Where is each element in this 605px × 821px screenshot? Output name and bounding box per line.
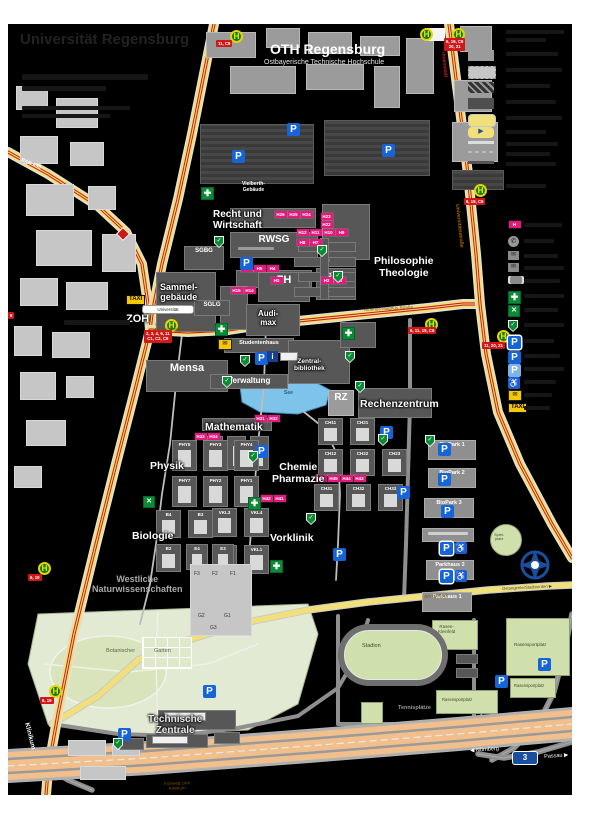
assembly-point-icon: ✕ <box>143 496 155 508</box>
legend-phone-icon: ✆ <box>508 236 519 247</box>
building <box>456 654 478 664</box>
city-block <box>80 766 126 780</box>
redacted-text-bar <box>524 323 564 327</box>
building-phy2: PHY2 <box>203 476 228 507</box>
redacted-text-bar <box>506 130 546 134</box>
map-label-line: Kleinfeld <box>438 629 455 634</box>
map-label-line: Westliche <box>92 574 183 584</box>
building-label: CH22 <box>351 451 374 456</box>
building-label: CH23 <box>383 451 406 456</box>
redacted-text-bar <box>22 114 110 118</box>
bus-route-line: 11, 20, 21 <box>484 343 503 348</box>
lecture-hall-badge: H41 <box>274 495 286 502</box>
map-label: WestlicheNaturwissenschaften <box>92 574 183 594</box>
map-label: Garten <box>154 648 171 654</box>
map-label: F3 <box>194 572 200 578</box>
lecture-hall-badge-cluster: H26H25H24 <box>274 210 313 218</box>
bus-route-line: 20, 21 <box>446 44 463 49</box>
lecture-hall-badge-cluster: H42H41 <box>260 494 286 502</box>
redacted-text-bar <box>506 162 556 166</box>
building-verwaltung: Verwaltung <box>210 374 288 389</box>
lecture-hall-badge-cluster: H23H22 <box>320 212 333 228</box>
legend-mail-icon: ✉ <box>508 251 519 260</box>
map-label: Vielberth-Gebäude <box>242 182 265 193</box>
city-block <box>68 740 106 756</box>
city-block <box>66 282 108 310</box>
building-ch23: CH23 <box>382 449 407 476</box>
map-label-line: platz <box>494 537 504 541</box>
lecture-hall-badge: H24 <box>301 211 313 218</box>
stadium <box>338 624 448 686</box>
building-label: CH11 <box>319 420 342 425</box>
map-label-line: Zentrale <box>148 725 202 736</box>
map-label: Albertus-Magnus-Straße <box>154 326 203 332</box>
lecture-hall-badge: H11 <box>310 229 322 236</box>
building-label: RZ <box>329 392 353 404</box>
building-label: B4 <box>157 512 180 517</box>
map-label: TechnischeZentrale <box>148 714 202 736</box>
city-block <box>70 142 104 166</box>
map-label: Recht undWirtschaft <box>213 209 262 231</box>
bus-route-line: 6, 11, 19, C6 <box>410 328 434 333</box>
taxi-sign: TAXI <box>126 295 145 305</box>
redacted-text-bar <box>524 254 558 258</box>
building-studentenhaus: Studentenhaus <box>224 338 294 353</box>
lecture-hall-badge: H44 <box>341 475 353 482</box>
map-label-line: Philosophie <box>374 256 434 268</box>
legend-swatch-university-building <box>468 50 494 61</box>
lecture-hall-badge: H5 <box>254 265 266 272</box>
map-label-line: bibliothek <box>294 365 325 372</box>
city-block <box>88 186 116 210</box>
map-label: Universität Regensburg <box>20 32 189 49</box>
map-label-line: Gebäude <box>242 188 265 194</box>
redacted-text-bar <box>524 393 552 397</box>
building-label: SGLG <box>195 302 229 309</box>
compass-rose-graphic <box>520 550 550 580</box>
building-label: PHY2 <box>204 478 227 483</box>
parking-lot <box>324 120 430 176</box>
city-block <box>52 332 90 358</box>
map-label: Botanischer <box>106 648 135 654</box>
lecture-hall-badge: H8 <box>297 239 309 246</box>
legend-parking-light-icon: P <box>508 364 521 377</box>
stadium-infield <box>344 630 442 680</box>
building-label: E3 <box>213 546 233 551</box>
green-court <box>361 702 383 724</box>
map-label-line: Recht und <box>213 209 262 220</box>
redacted-text-bar <box>524 380 556 384</box>
redacted-text-bar <box>524 223 562 227</box>
bus-route-line: 6, 19, C6 <box>466 199 483 204</box>
redacted-text-bar <box>524 239 554 243</box>
map-label-line: gebäude <box>160 292 198 302</box>
map-label: Physik <box>150 461 184 473</box>
map-label-line: Naturwissenschaften <box>92 584 183 594</box>
map-label: Fußweg zumKlinikum <box>164 780 190 791</box>
city-block <box>14 326 42 356</box>
bus-route-sign: 11, 20, 21 <box>482 342 505 349</box>
building <box>456 668 478 678</box>
lecture-hall-badge-cluster: H12H11H10H9 <box>296 228 348 236</box>
legend-swatch-planned-building <box>468 82 494 93</box>
campus-map-page: RWSGSGBGSGLGZHPT4PT3PT1StudentenhausMens… <box>0 0 605 821</box>
map-label: Rasensportplatz <box>514 642 547 647</box>
building-label: CH31 <box>315 486 338 491</box>
city-block <box>102 234 136 272</box>
oth-building <box>230 66 296 94</box>
building-label: CH12 <box>319 451 342 456</box>
first-aid-icon: ✚ <box>201 187 214 200</box>
oth-building <box>406 38 434 94</box>
map-label: Biologie <box>132 531 173 543</box>
building-label: PHY1 <box>235 478 258 483</box>
map-label: G2 <box>198 614 205 620</box>
building <box>214 732 240 744</box>
city-block <box>56 98 98 128</box>
building-label: PHY7 <box>173 478 196 483</box>
accessible-parking-icon: ♿ <box>455 542 467 554</box>
building-label: PHY5 <box>173 442 196 447</box>
building-label: Parkhaus 2 <box>427 562 473 568</box>
building-label: VKL4 <box>245 510 268 515</box>
building-vkl3: VKL3 <box>212 508 237 537</box>
redacted-text-bar <box>238 247 274 250</box>
redacted-text-bar <box>524 354 560 358</box>
legend-bus-icon <box>508 276 524 284</box>
redacted-text-bar <box>64 320 130 325</box>
building-biopark-1: BioPark 1 <box>428 440 476 460</box>
map-label: PhilosophieTheologie <box>374 256 434 280</box>
parking-icon: P <box>441 505 454 518</box>
parking-icon: P <box>382 144 395 157</box>
lecture-hall-badge: H7 <box>310 239 322 246</box>
building-label: PHY3 <box>204 442 227 447</box>
redacted-text-bar <box>506 38 546 42</box>
map-label: OTH Regensburg <box>270 42 385 58</box>
legend-swatch-one-way-road: ▶ <box>468 127 494 138</box>
redacted-text-bar <box>524 266 564 270</box>
building-label: BioPark 2 <box>429 470 475 476</box>
map-label: Stadion <box>362 643 381 649</box>
map-label: Sammel-gebäude <box>160 282 198 302</box>
redacted-text-bar <box>506 142 558 146</box>
city-block <box>20 372 56 400</box>
redacted-text-bar <box>506 84 550 88</box>
bus-route-line: 6 <box>10 313 12 318</box>
parking-icon: P <box>538 658 551 671</box>
lecture-hall-badge-cluster: H15H14 <box>230 286 256 294</box>
map-label: Mathematik <box>205 422 263 434</box>
bus-route-sign: 6, 19 <box>28 574 42 581</box>
map-label-line: max <box>258 319 278 328</box>
bus-route-sign: 6 <box>8 312 14 319</box>
parking-icon: P <box>232 150 245 163</box>
redacted-text-bar <box>22 86 106 91</box>
bus-route-sign: 6, 19, C6 <box>464 198 485 205</box>
map-label: See <box>284 391 293 397</box>
lecture-hall-badge: H10 <box>323 229 335 236</box>
legend-swatch-other-building <box>468 66 496 79</box>
bus-stop-icon: H <box>420 28 433 41</box>
building-label: Studentenhaus <box>225 340 293 346</box>
redacted-text-bar <box>524 279 560 283</box>
map-label-line: Klinikum <box>164 785 190 791</box>
building-ch32: CH32 <box>346 484 371 511</box>
building-ch21: CH21 <box>350 418 375 445</box>
legend-parking-bordered-icon: P <box>508 336 521 349</box>
first-aid-icon: ✚ <box>342 327 355 340</box>
parking-icon: P <box>240 257 253 270</box>
map-label: ChemiePharmazie <box>272 462 325 486</box>
legend-swatch-footpath <box>468 151 494 153</box>
building-label: SGBG <box>185 248 223 255</box>
parking-icon: P <box>438 443 451 456</box>
lecture-hall-badge: H4 <box>267 265 279 272</box>
map-label-line: Sammel- <box>160 282 198 292</box>
building-label: BioPark 1 <box>429 442 475 448</box>
redacted-text-bar <box>428 532 468 535</box>
first-aid-icon: ✚ <box>270 560 283 573</box>
parking-icon: P <box>333 548 346 561</box>
redacted-text-bar <box>506 100 556 104</box>
redacted-text-bar <box>22 106 130 110</box>
lecture-hall-badge-cluster: H3 <box>270 276 283 284</box>
map-label: Ostbayerische Technische Hochschule <box>264 59 384 67</box>
map-label: Tennisplätze <box>398 705 431 711</box>
legend-post-icon: ✉ <box>508 390 522 401</box>
oth-building <box>306 64 364 90</box>
map-label-line: Pharmazie <box>272 474 325 486</box>
first-aid-icon: ✚ <box>215 323 228 336</box>
lecture-hall-badge: H23 <box>321 213 333 220</box>
map-label: Zentral-bibliothek <box>294 358 325 373</box>
campus-map: RWSGSGBGSGLGZHPT4PT3PT1StudentenhausMens… <box>8 24 572 795</box>
lecture-hall-badge: H15 <box>231 287 243 294</box>
bus-stop-icon: H <box>474 184 487 197</box>
parking-icon: P <box>397 486 410 499</box>
map-label: Vorklinik <box>270 533 314 545</box>
info-icon: i <box>267 351 278 362</box>
map-label-line: Technische <box>148 714 202 725</box>
building-label: B3 <box>189 512 212 517</box>
lecture-hall-badge: H9 <box>336 229 348 236</box>
city-block <box>20 278 58 306</box>
bus-route-sign: 6, 19 <box>40 697 54 704</box>
lecture-hall-badge: H43 <box>354 475 366 482</box>
bus-route-line: 11, C6 <box>218 41 230 46</box>
building-b2: B2 <box>156 544 181 572</box>
building-ch11: CH11 <box>318 418 343 445</box>
map-label: G3 <box>210 626 217 632</box>
legend-lecture-hall-badge: H <box>509 221 521 228</box>
map-label: Spiel-platz <box>494 533 504 542</box>
lecture-hall-badge: H45 <box>328 475 340 482</box>
first-aid-icon: ✚ <box>248 497 261 510</box>
map-label-line: Wirtschaft <box>213 220 262 231</box>
legend-accessible-icon: ♿ <box>508 377 520 389</box>
compass-rose <box>520 550 550 580</box>
building <box>422 528 474 542</box>
building-rz: RZ <box>328 390 354 416</box>
map-label: Rasensportplatz <box>514 684 544 689</box>
accessible-parking-icon: ♿ <box>455 570 467 582</box>
bus-route-sign: 6, 19, C620, 21 <box>444 38 465 51</box>
redacted-text-bar <box>506 68 562 72</box>
bus-route-line: C1, C2, C6 <box>146 336 170 341</box>
legend-swatch-minor-road <box>468 141 494 144</box>
lecture-hall-badge: H42 <box>261 495 273 502</box>
autobahn-shield: 3 <box>512 751 538 765</box>
legend-swatch-main-road <box>468 114 496 127</box>
map-label: Rasen-Kleinfeld <box>438 624 455 634</box>
redacted-text-bar <box>22 74 148 80</box>
city-block <box>66 376 94 398</box>
city-block <box>36 230 92 266</box>
building-phy7: PHY7 <box>172 476 197 507</box>
lecture-hall-badge-cluster: H8H7 <box>296 238 322 246</box>
map-label: G1 <box>224 614 231 620</box>
legend-first-aid-icon: ✚ <box>508 291 521 304</box>
oth-building <box>374 66 400 108</box>
redacted-text-bar <box>506 152 550 156</box>
parking-icon: P <box>440 542 453 555</box>
building-b3: B3 <box>188 510 213 538</box>
building-sgbg: SGBG <box>184 246 224 270</box>
lecture-hall-badge: H3 <box>271 277 283 284</box>
bus-route-sign: 6, 11, 19, C6 <box>408 327 436 334</box>
building-ch31: CH31 <box>314 484 339 511</box>
bus-route-line: 6, 19 <box>30 575 40 580</box>
city-block <box>26 420 66 446</box>
building-label: CH32 <box>347 486 370 491</box>
building-ch22: CH22 <box>350 449 375 476</box>
parking-icon: P <box>495 675 508 688</box>
small-sign-box <box>152 736 188 744</box>
redacted-text-bar <box>524 339 554 343</box>
bus-stop-name: Universität <box>142 305 194 314</box>
redacted-text-bar <box>524 367 564 371</box>
map-label: Rechenzentrum <box>360 399 439 411</box>
building-label: VKL1 <box>245 547 268 552</box>
parking-icon: P <box>440 570 453 583</box>
legend-assembly-point-icon: ✕ <box>508 305 520 317</box>
parking-icon: P <box>203 685 216 698</box>
lecture-hall-badge: H32 <box>268 415 280 422</box>
building-label: B2 <box>157 546 180 551</box>
building-label: CH21 <box>351 420 374 425</box>
lecture-hall-badge: H2 <box>321 277 333 284</box>
building-label: Mensa <box>147 362 227 375</box>
building-label: E4 <box>187 546 207 551</box>
building-label: VKL3 <box>213 510 236 515</box>
lecture-hall-badge: H26 <box>275 211 287 218</box>
city-block <box>14 466 42 488</box>
legend-mail-icon: ✉ <box>508 263 519 272</box>
post-icon: ✉ <box>218 339 232 350</box>
city-block <box>26 184 74 216</box>
parking-icon: P <box>438 473 451 486</box>
legend-parking-icon: P <box>508 351 521 364</box>
building-phy3: PHY3 <box>203 440 228 471</box>
map-label: Rasensportplatz <box>442 698 472 703</box>
redacted-text-bar <box>524 406 550 410</box>
map-label: F1 <box>230 572 236 578</box>
building-sglg: SGLG <box>194 300 230 316</box>
redacted-text-bar <box>506 52 558 56</box>
building-biopark-2: BioPark 2 <box>428 468 476 488</box>
map-label-line: Theologie <box>374 268 434 280</box>
redacted-text-bar <box>524 308 558 312</box>
map-label: Audi-max <box>258 310 278 328</box>
redacted-text-bar <box>506 184 546 188</box>
map-label: F2 <box>212 572 218 578</box>
lecture-hall-badge: H22 <box>321 221 333 228</box>
lecture-hall-badge: H12 <box>297 229 309 236</box>
building-vkl4: VKL4 <box>244 508 269 537</box>
redacted-text-bar <box>524 294 564 298</box>
lecture-hall-badge: H14 <box>244 287 256 294</box>
parking-icon: P <box>287 123 300 136</box>
redacted-text-bar <box>506 116 562 120</box>
legend-swatch-rail-line <box>468 161 494 164</box>
map-label-line: Chemie <box>272 462 325 474</box>
lecture-hall-badge: H25 <box>288 211 300 218</box>
redacted-text-bar <box>506 30 564 34</box>
bus-route-sign: 11, C6 <box>216 40 232 47</box>
legend-swatch-dark-building <box>468 98 494 109</box>
bus-route-line: 6, 19 <box>42 698 52 703</box>
